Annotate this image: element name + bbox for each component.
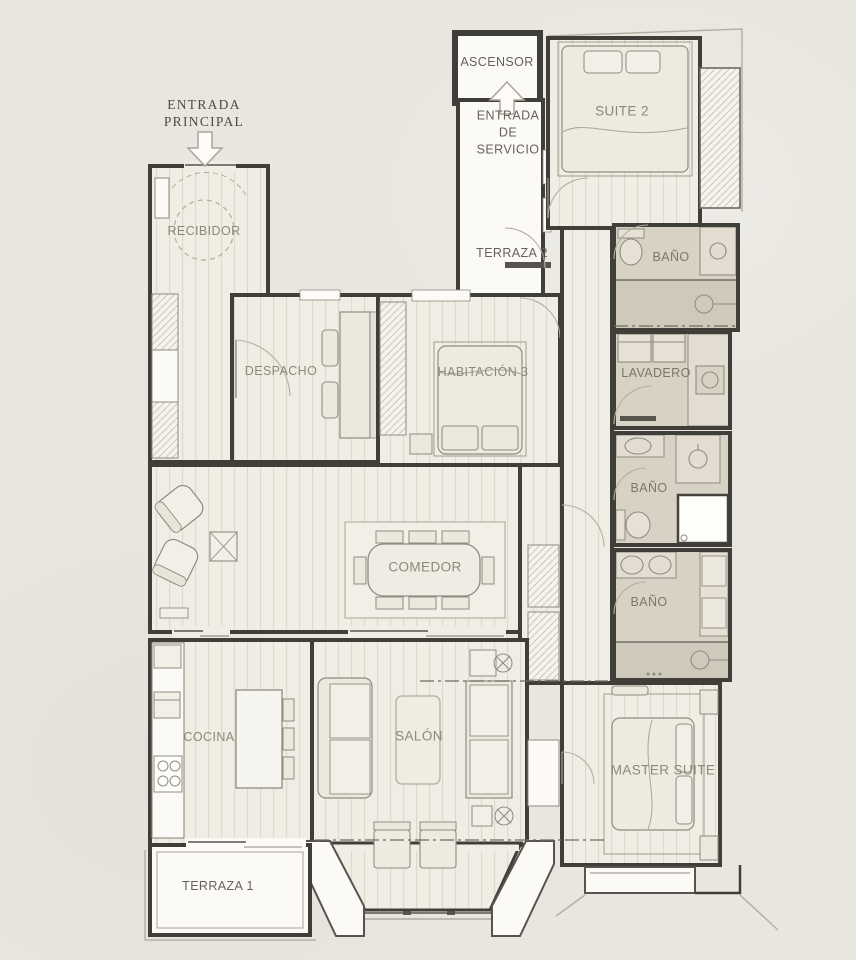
label-entrada-servicio-line2: DE [463,125,553,142]
floor-plan-page: ENTRADA PRINCIPAL ASCENSOR ENTRADA DE SE… [0,0,856,960]
room-label-suite-2: SUITE 2 [595,104,649,119]
room-label-terraza-2: TERRAZA 2 [476,246,548,260]
room-label-bano-3: BAÑO [630,595,667,609]
room-living-dining [150,465,520,640]
room-label-cocina: COCINA [183,730,234,744]
label-entrada-servicio-line3: SERVICIO [463,141,553,158]
label-entrada-servicio-line1: ENTRADA [463,108,553,125]
room-label-master-suite: MASTER SUITE [611,763,716,778]
room-suite-2 [548,38,740,228]
label-entrada-principal: ENTRADA PRINCIPAL [144,97,264,131]
main-entrance-arrow [188,132,222,166]
label-entrada-principal-line2: PRINCIPAL [144,114,264,131]
room-label-recibidor: RECIBIDOR [167,224,240,238]
room-label-bano-suite-2: BAÑO [652,250,689,264]
room-label-terraza-1: TERRAZA 1 [182,879,254,893]
room-label-comedor: COMEDOR [388,560,461,575]
room-label-salon: SALÓN [395,729,443,744]
label-entrada-servicio: ENTRADA DE SERVICIO [463,108,553,159]
room-bano-suite-2 [614,225,738,330]
room-bano-3 [614,550,730,680]
room-label-ascensor: ASCENSOR [460,55,533,69]
floor-plan-drawing [0,0,856,960]
room-label-despacho: DESPACHO [245,364,317,378]
room-label-lavadero: LAVADERO [621,366,690,380]
room-label-habitacion-3: HABITACIÓN 3 [438,365,529,379]
room-label-bano-2: BAÑO [630,481,667,495]
room-lavadero [614,332,730,428]
room-master-suite [528,683,740,893]
label-entrada-principal-line1: ENTRADA [144,97,264,114]
